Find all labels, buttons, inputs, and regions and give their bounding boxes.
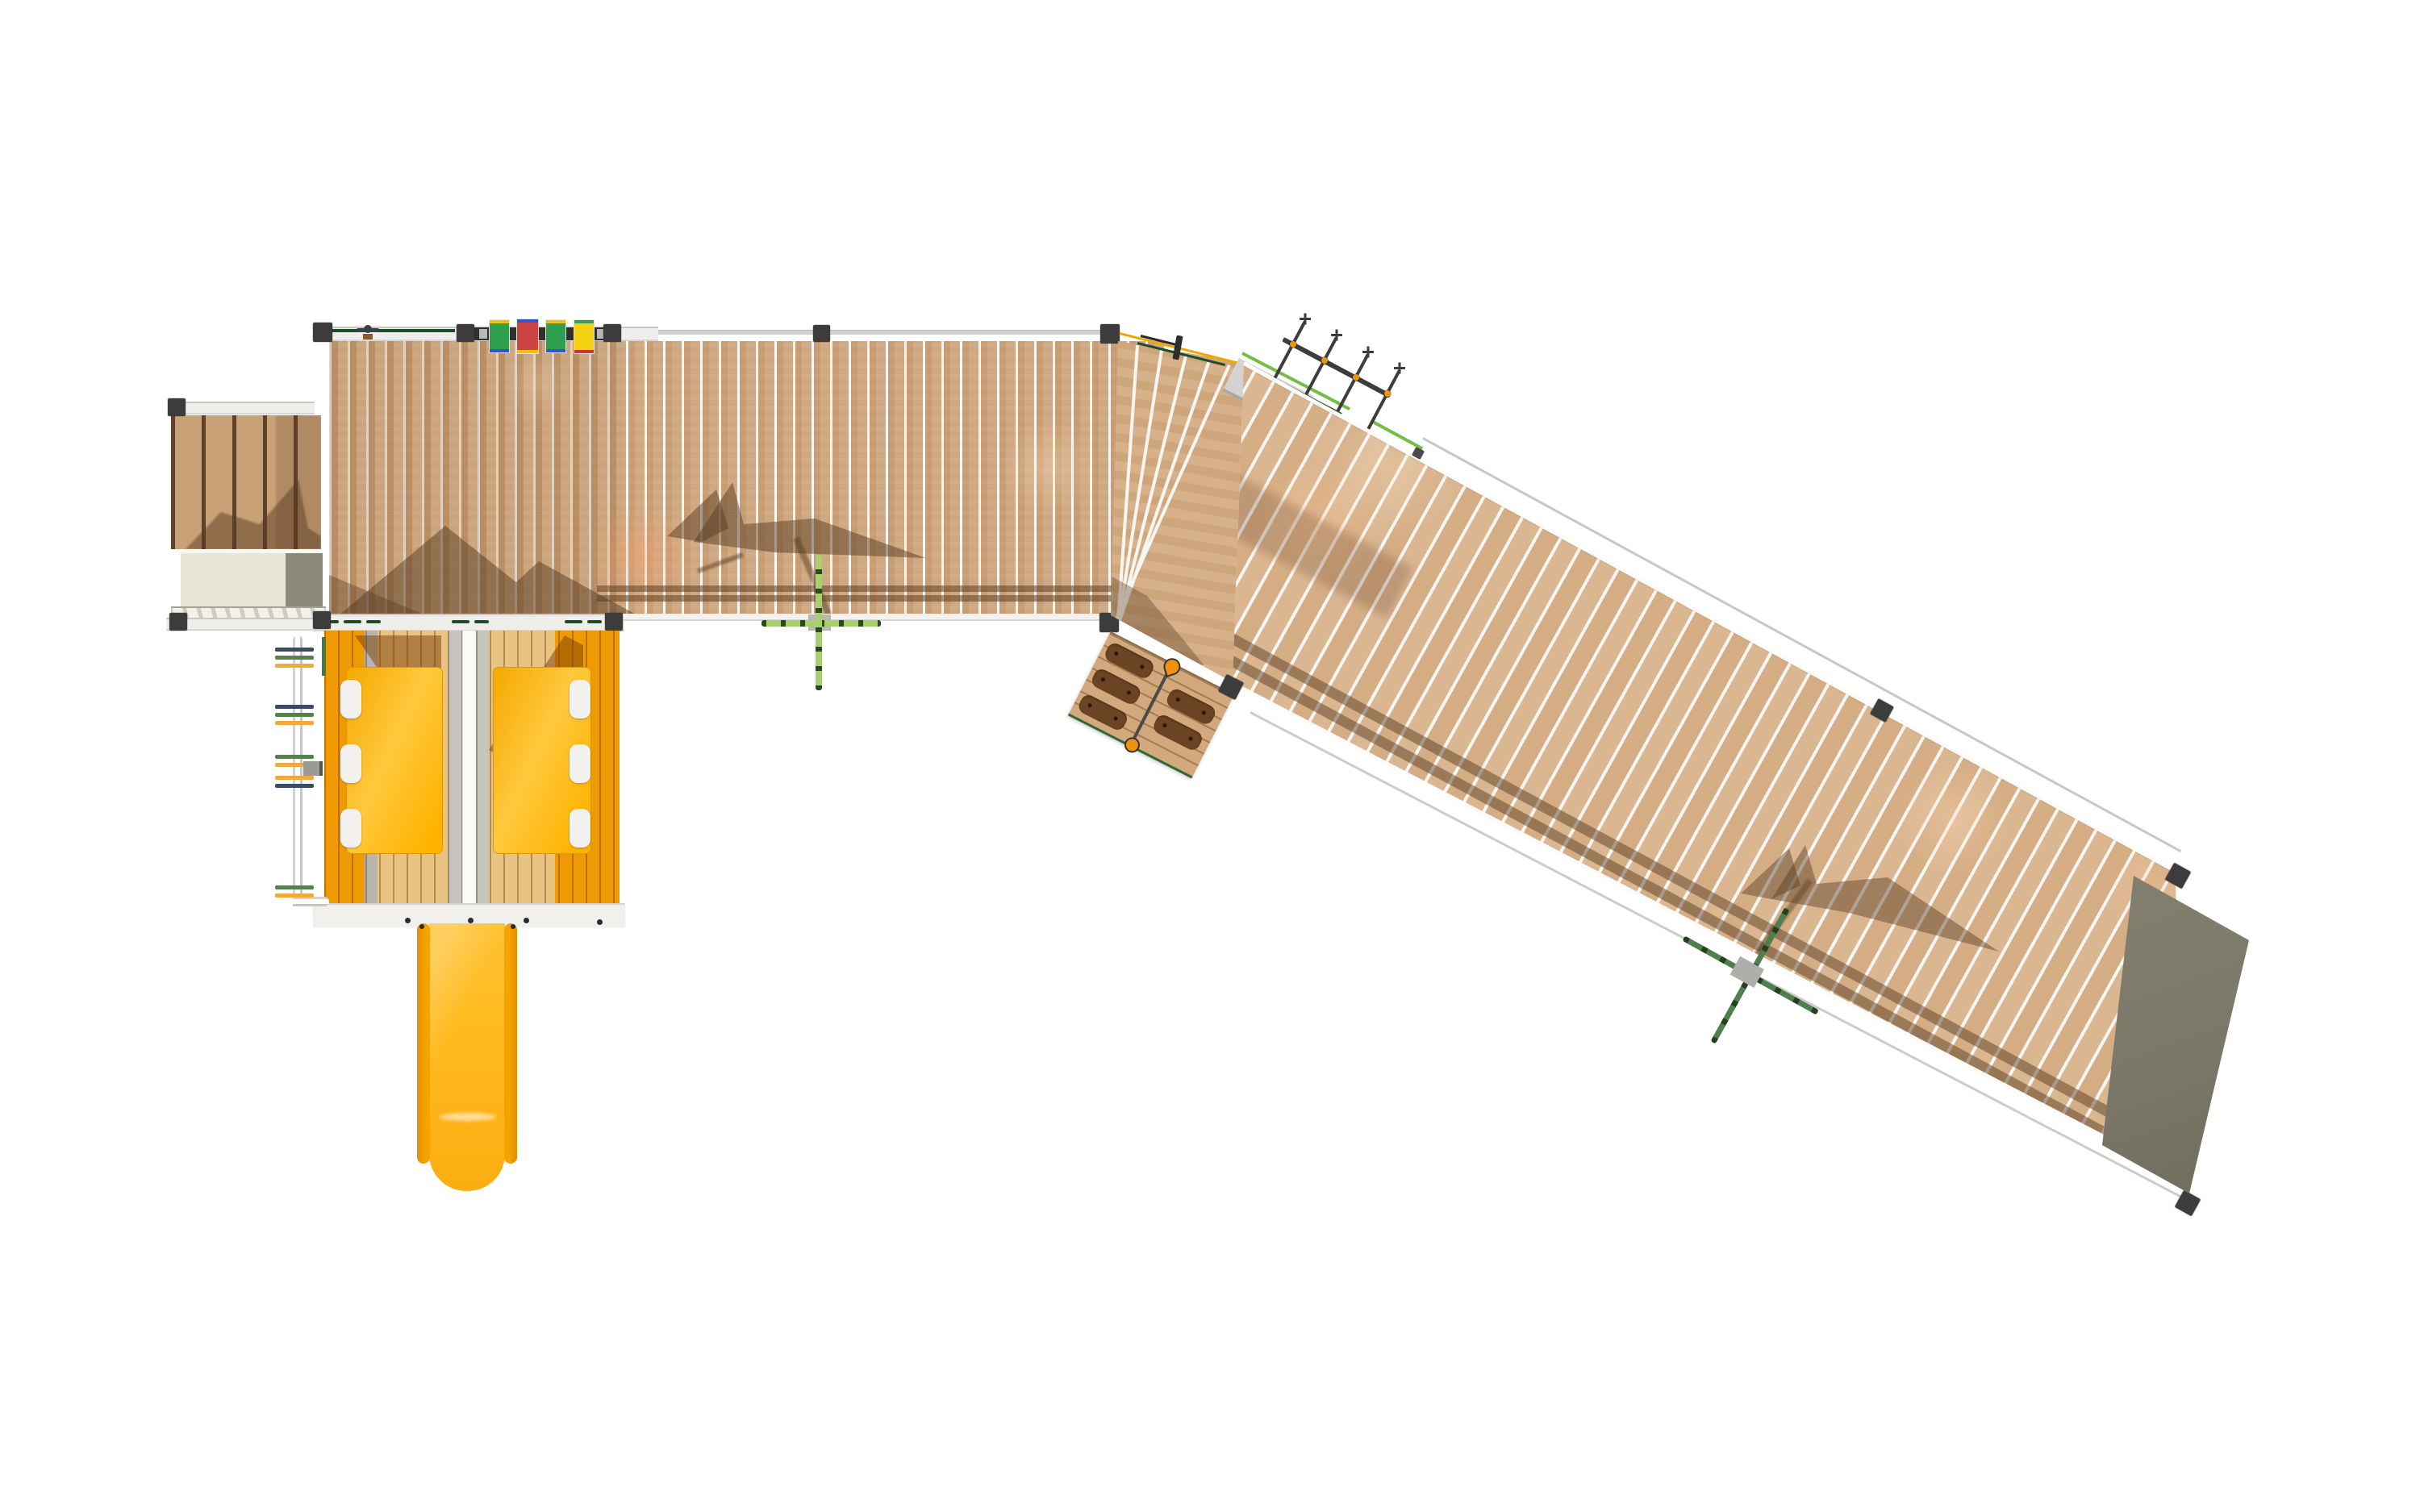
climb-pole <box>293 635 302 905</box>
pole-rung <box>275 776 314 780</box>
roof-bracket <box>570 809 590 848</box>
roof-bracket <box>570 680 590 719</box>
handrail-dash <box>452 620 469 623</box>
fastener-dot <box>405 918 411 923</box>
stairs-deck <box>171 415 321 549</box>
net-finial-icon <box>1362 346 1375 359</box>
pole-rung <box>275 705 314 709</box>
post <box>457 324 474 342</box>
post <box>603 324 621 342</box>
pole-rung <box>275 648 314 652</box>
post <box>313 611 331 629</box>
play-panel-red <box>517 319 538 353</box>
climb-rope-anchor <box>1122 735 1143 756</box>
stairs-ramp-crate <box>181 552 323 606</box>
roof-bracket <box>340 680 361 719</box>
pole-rung <box>275 885 314 889</box>
stairs-ramp-crate-shaded <box>286 553 323 606</box>
sapling-cross-light <box>816 555 822 690</box>
panel-mount-collar <box>479 329 487 339</box>
bridge-bottom-edge <box>623 614 1167 621</box>
handrail-dash <box>366 620 381 623</box>
pole-rung <box>275 713 314 717</box>
pole-rung <box>275 784 314 788</box>
handrail-dash <box>587 620 602 623</box>
rail-shadow-stripe <box>597 585 1166 592</box>
stairs-bottom-rail <box>166 618 326 631</box>
play-panel-green <box>546 320 565 352</box>
net-joint <box>1321 357 1328 364</box>
pole-bracket <box>303 761 323 776</box>
booth-green-strip <box>322 637 326 676</box>
tree-shadow-ramp <box>1233 363 2188 1179</box>
net-finial-icon <box>1330 329 1343 342</box>
post <box>813 325 830 342</box>
slide-rail-left <box>417 923 430 1164</box>
net-finial-icon <box>1393 362 1406 375</box>
play-panel-yellow <box>574 320 594 353</box>
post <box>168 398 186 416</box>
tree-shadow-stairs <box>171 415 321 549</box>
bridge-deck <box>329 341 1166 615</box>
ship-wheel-hub-icon <box>364 325 372 333</box>
pole-rung <box>275 721 314 725</box>
slide-anchor-dot <box>419 924 424 929</box>
net-joint <box>1384 390 1391 397</box>
pole-rung <box>275 755 314 759</box>
ship-wheel-base <box>363 334 373 339</box>
fastener-dot <box>468 918 474 923</box>
pole-rung <box>275 656 314 660</box>
fastener-dot <box>524 918 529 923</box>
net-joint <box>1353 374 1359 381</box>
net-joint <box>1290 341 1296 348</box>
bridge-top-rail <box>658 330 1110 336</box>
pole-rung <box>275 664 314 668</box>
green-handrail <box>332 329 455 332</box>
rail-shadow-stripe <box>597 595 1166 602</box>
post <box>1100 324 1120 344</box>
handrail-dash <box>344 620 361 623</box>
handrail-dash <box>565 620 582 623</box>
roof-bracket <box>570 744 590 783</box>
slide-rail-right <box>504 923 517 1164</box>
slide-bed <box>429 923 505 1191</box>
net-rail <box>1282 337 1391 398</box>
playground-plan <box>0 0 2420 1512</box>
stairs-top-rail <box>176 402 315 414</box>
pole-rung <box>275 893 314 898</box>
post <box>313 323 332 342</box>
play-panel-green <box>490 320 509 352</box>
handrail-dash <box>474 620 489 623</box>
tree-shadow-bridge <box>329 341 1166 615</box>
roof-bracket <box>340 744 361 783</box>
ramp-deck <box>1233 363 2188 1179</box>
post <box>169 613 187 631</box>
fastener-dot <box>597 919 603 925</box>
slide-anchor-dot <box>511 924 515 929</box>
post <box>605 613 623 631</box>
net-finial-icon <box>1299 313 1312 326</box>
roof-bracket <box>340 809 361 848</box>
slide-sheen <box>440 1113 496 1121</box>
climb-pole-elbow <box>293 897 329 906</box>
